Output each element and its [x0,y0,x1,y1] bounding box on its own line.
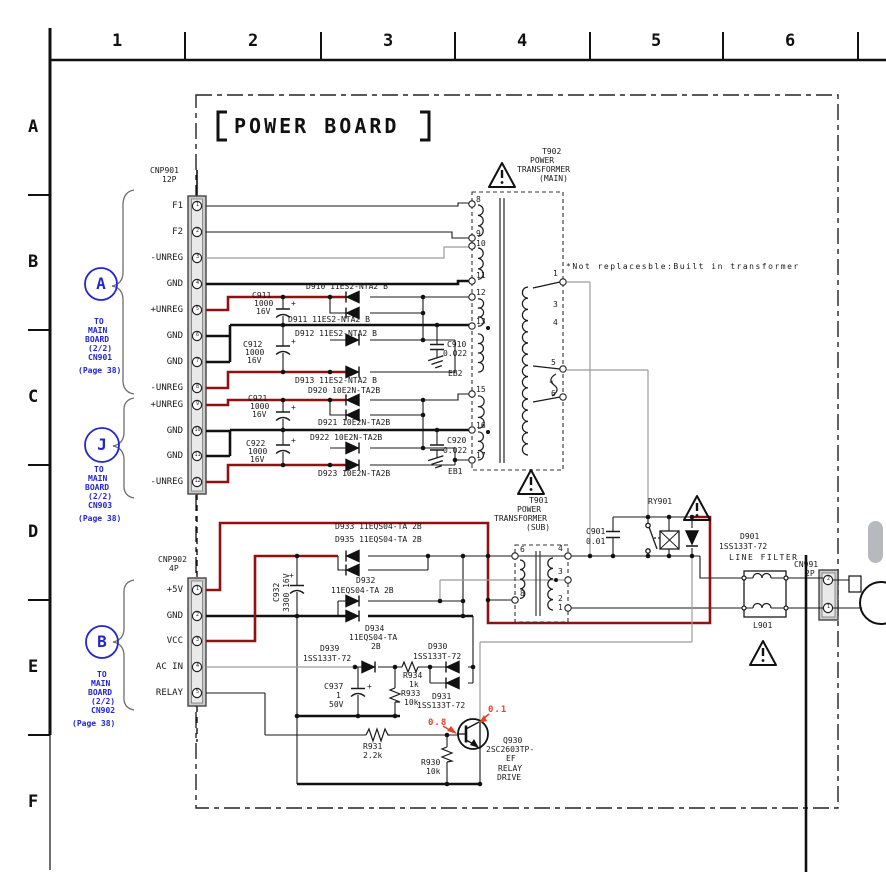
warning-t902-icon [489,163,515,187]
label-c937: C937 [324,683,343,691]
cnp902-pin-relay: RELAY [118,689,183,698]
cnp902-pin-gnd: GND [118,612,183,621]
grid-col-6: 6 [785,33,795,50]
note-text: *Not replacesble:Built in transformer [566,263,800,271]
relay-ry901 [646,523,679,553]
capacitor-symbols [276,309,620,697]
grid-col-4: 4 [517,33,527,50]
label-c932: C932 [273,583,281,602]
resistor-r933-icon [390,688,400,702]
label-d923: D923 10E2N-TA2B [318,470,390,478]
schematic-page: 1 2 3 4 5 6 A B C D E F POWER BOARD *Not… [0,0,886,893]
cnp901-pin-gnd4: GND [118,427,183,436]
diode-d931-icon [446,678,459,689]
diode-d920-icon [346,395,359,406]
label-c910: C910 [447,341,466,349]
cnp901-pin-gnd5: GND [118,452,183,461]
grid-row-b: B [28,254,38,271]
ground-eb1-icon [428,456,446,470]
resistor-r931-icon [366,729,390,741]
title-bracket-right-icon [420,112,429,140]
label-d939: D939 [320,645,339,653]
label-d934: D934 [365,625,384,633]
grid-row-e: E [28,659,38,676]
cnp901-pin-unreg-neg3: -UNREG [118,478,183,487]
label-d912: D912 11ES2-NTA2 B [295,330,377,338]
grid-col-1: 1 [112,33,122,50]
label-eb1: EB1 [448,468,462,476]
cn991-ref: CN991 [794,561,818,569]
cnp901-pin-unreg-pos2: +UNREG [118,401,183,410]
label-ry901: RY901 [648,498,672,506]
diode-d922-icon [346,443,359,454]
label-d930: D930 [428,643,447,651]
cnp902-ref: CNP902 [158,556,187,564]
link-j-id: J [94,437,110,453]
label-r931: R931 [363,743,382,751]
diode-d935-icon [346,565,359,576]
title-bracket-left-icon [218,112,227,140]
label-c920: C920 [447,437,466,445]
grid-row-d: D [28,524,38,541]
label-d911: D911 11ES2-NTA2 B [288,316,370,324]
label-d921: D921 10E2N-TA2B [318,419,390,427]
cnp901-pin-unreg-neg1: -UNREG [118,254,183,263]
cnp901-pin-unreg-pos1: +UNREG [118,306,183,315]
grid-row-f: F [28,794,38,811]
scrollbar-thumb[interactable] [868,521,883,563]
label-d932: D932 [356,577,375,585]
transistor-q930-icon [458,719,488,749]
cnp902-pin-5v: +5V [118,586,183,595]
cap-c910-icon [430,345,444,350]
label-d922: D922 10E2N-TA2B [310,434,382,442]
diode-d930-icon [446,662,459,673]
label-d935: D935 11EQS04-TA 2B [335,536,422,544]
diode-d932-icon [346,596,359,607]
page-title: POWER BOARD [234,114,399,138]
link-a-id: A [93,276,109,292]
cn991-size: 2P [805,570,815,578]
cap-c901-icon [606,532,620,538]
ac-plug-icon [849,576,886,624]
resistor-r930-icon [442,747,452,762]
diode-d901-icon [686,531,698,546]
label-d910: D910 11ES2-NTA2 B [306,283,388,291]
grid-row-a: A [28,119,38,136]
cnp901-pin-unreg-neg2: -UNREG [118,384,183,393]
cnp902-pin-acin: AC IN [118,663,183,672]
diode-d933-icon [346,551,359,562]
link-b-id: B [94,634,110,650]
label-r934: R934 [403,672,422,680]
label-r933: R933 [401,690,420,698]
cnp901-pin-gnd1: GND [118,280,183,289]
diode-symbols [346,292,698,689]
cnp901-pin-f2: F2 [118,228,183,237]
cnp901-ref: CNP901 [150,167,179,175]
meas-collector-voltage: 0.1 [488,706,507,715]
grid-col-3: 3 [383,33,393,50]
grid-col-2: 2 [248,33,258,50]
label-c901: C901 [586,528,605,536]
cnp901-pin-f1: F1 [118,202,183,211]
label-d913: D913 11ES2-NTA2 B [295,377,377,385]
label-line-filter: LINE FILTER [729,554,798,562]
diode-d934-icon [346,611,359,622]
cnp902-size: 4P [169,565,179,573]
grid-col-5: 5 [651,33,661,50]
meas-base-voltage: 0.8 [428,719,447,728]
label-l901: L901 [753,622,772,630]
diode-d910-icon [346,292,359,303]
t901-ref: T901 [529,497,548,505]
label-d933: D933 11EQS04-TA 2B [335,523,422,531]
cnp901-size: 12P [162,176,176,184]
warning-l901-icon [750,641,776,665]
label-d931: D931 [432,693,451,701]
t902-ref: T902 [542,148,561,156]
label-r930: R930 [421,759,440,767]
diode-d939-icon [362,662,375,673]
cnp901-pin-gnd3: GND [118,358,183,367]
label-eb2: EB2 [448,370,462,378]
cnp901-pin-gnd2: GND [118,332,183,341]
warning-t901-icon [518,470,544,494]
label-q930: Q930 [503,737,522,745]
label-d920: D920 10E2N-TA2B [308,387,380,395]
cnp902-pin-vcc: VCC [118,637,183,646]
label-d901: D901 [740,533,759,541]
warning-triangles [489,163,776,665]
grid-row-c: C [28,389,38,406]
power-board-outline [196,95,838,808]
